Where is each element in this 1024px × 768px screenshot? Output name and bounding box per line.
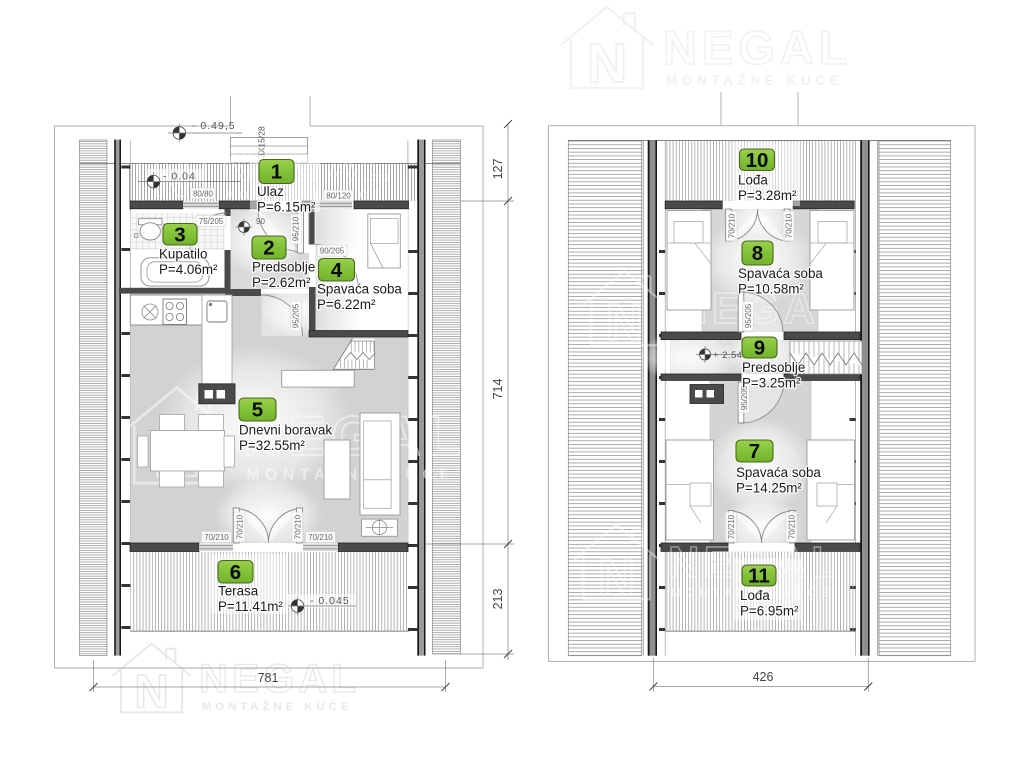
svg-text:90/205: 90/205 — [320, 246, 345, 255]
svg-text:95/205: 95/205 — [744, 303, 753, 328]
svg-text:8: 8 — [752, 242, 763, 265]
svg-text:Predsoblje: Predsoblje — [252, 260, 315, 275]
svg-text:2: 2 — [263, 237, 274, 260]
svg-text:P=3.25m²: P=3.25m² — [742, 376, 801, 391]
svg-text:P=6.22m²: P=6.22m² — [317, 297, 376, 312]
svg-text:P=4.06m²: P=4.06m² — [159, 262, 218, 277]
svg-text:781: 781 — [258, 671, 279, 685]
svg-text:Spavaća soba: Spavaća soba — [738, 266, 823, 281]
svg-text:Lođa: Lođa — [740, 588, 770, 603]
svg-text:10: 10 — [746, 149, 769, 172]
svg-text:1: 1 — [271, 161, 282, 184]
svg-text:Spavaća soba: Spavaća soba — [317, 282, 402, 297]
svg-text:90: 90 — [256, 217, 265, 226]
svg-text:P=14.25m²: P=14.25m² — [736, 481, 802, 496]
svg-text:Terasa: Terasa — [218, 584, 259, 599]
svg-text:70/210: 70/210 — [787, 514, 796, 539]
svg-text:80/120: 80/120 — [326, 191, 351, 200]
svg-text:P=2.62m²: P=2.62m² — [252, 275, 311, 290]
svg-text:P=6.15m²: P=6.15m² — [257, 200, 316, 215]
svg-text:+ 2.54: + 2.54 — [713, 350, 743, 361]
svg-text:Spavaća soba: Spavaća soba — [736, 465, 821, 480]
svg-text:P=11.41m²: P=11.41m² — [218, 599, 283, 614]
svg-text:Lođa: Lođa — [738, 173, 768, 188]
svg-text:Ulaz: Ulaz — [257, 184, 284, 199]
svg-text:714: 714 — [491, 379, 505, 400]
svg-text:75/205: 75/205 — [199, 217, 224, 226]
svg-text:70/210: 70/210 — [204, 533, 229, 542]
svg-text:70/210: 70/210 — [308, 533, 333, 542]
svg-text:70/210: 70/210 — [784, 213, 793, 238]
svg-text:70/210: 70/210 — [293, 514, 302, 539]
svg-text:5: 5 — [252, 399, 263, 422]
svg-text:P=3.28m²: P=3.28m² — [738, 188, 797, 203]
svg-text:127: 127 — [491, 159, 505, 180]
svg-text:P=10.58m²: P=10.58m² — [738, 282, 804, 297]
svg-text:7: 7 — [749, 440, 760, 463]
svg-text:6: 6 — [230, 561, 241, 584]
svg-text:Dnevni boravak: Dnevni boravak — [239, 423, 332, 438]
svg-text:4: 4 — [331, 259, 343, 282]
svg-text:95/210: 95/210 — [292, 216, 301, 241]
svg-text:11: 11 — [748, 565, 770, 588]
svg-text:95/205: 95/205 — [292, 303, 301, 328]
svg-text:70/210: 70/210 — [235, 514, 244, 539]
svg-text:Kupatilo: Kupatilo — [159, 247, 207, 262]
svg-text:426: 426 — [753, 670, 774, 684]
svg-text:213: 213 — [491, 589, 505, 610]
svg-text:3: 3 — [174, 223, 185, 246]
svg-text:P=32.55m²: P=32.55m² — [239, 438, 305, 453]
svg-text:Predsoblje: Predsoblje — [742, 360, 805, 375]
svg-text:70/210: 70/210 — [727, 514, 736, 539]
svg-text:- 0.04: - 0.04 — [163, 171, 196, 183]
svg-text:9: 9 — [754, 337, 765, 360]
svg-text:- 0.49,5: - 0.49,5 — [192, 120, 236, 132]
svg-text:P=6.95m²: P=6.95m² — [740, 604, 799, 619]
svg-text:80/80: 80/80 — [193, 189, 214, 198]
svg-text:70/210: 70/210 — [727, 213, 736, 238]
svg-text:- 0.045: - 0.045 — [310, 595, 350, 607]
